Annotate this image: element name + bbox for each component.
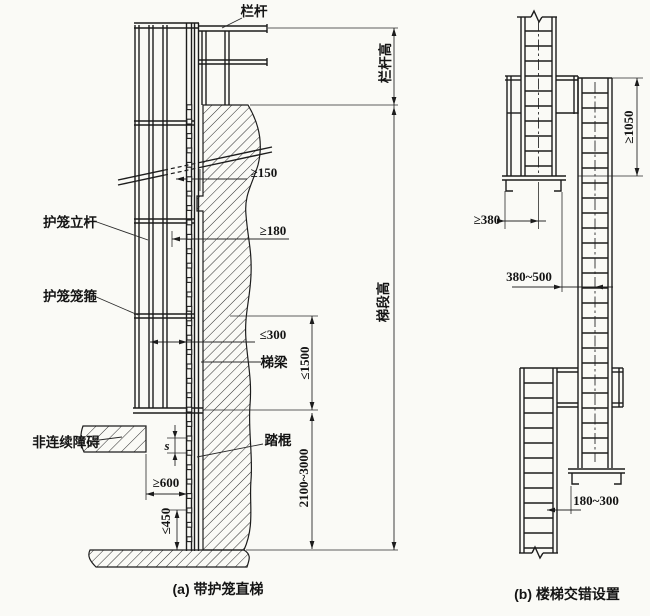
dim-le450: ≤450	[158, 508, 173, 535]
caption-a: (a) 带护笼直梯	[173, 581, 264, 597]
lower-left-ladder	[519, 368, 558, 558]
technical-drawing: 栏杆 护笼立杆 护笼笼箍 非连续障碍 梯梁 踏棍 ≥150 ≥180 ≤300 …	[0, 0, 650, 616]
lower-left-ladder-rungs	[524, 383, 553, 548]
figure-canvas: 栏杆 护笼立杆 护笼笼箍 非连续障碍 梯梁 踏棍 ≥150 ≥180 ≤300 …	[0, 0, 650, 616]
dim-flight-height: 梯段高	[375, 282, 391, 323]
label-cage-hoop: 护笼笼箍	[43, 288, 97, 304]
dim-ge600: ≥600	[153, 475, 180, 490]
label-cage-upright: 护笼立杆	[43, 214, 97, 230]
dim-ge380: ≥380	[474, 212, 501, 227]
upper-platform	[502, 176, 566, 191]
platform-hook-right	[614, 473, 621, 484]
ground-slab	[89, 550, 249, 567]
label-guardrail: 栏杆	[241, 3, 268, 19]
arrowheads-a	[146, 28, 396, 550]
break-symbol-top	[531, 11, 542, 22]
dim-s: s	[163, 438, 169, 453]
cage-uprights	[135, 25, 167, 408]
label-stringer: 梯梁	[261, 354, 288, 370]
lower-platform	[568, 469, 625, 484]
platform-hook-left	[572, 473, 579, 484]
platform-hook-right	[554, 180, 561, 191]
dim-380-500: 380~500	[506, 269, 552, 284]
dim-guardrail-height: 栏杆高	[377, 43, 393, 84]
lower-cage-outline	[557, 368, 623, 407]
caption-b: (b) 楼梯交错设置	[514, 586, 620, 602]
dim-ge150: ≥150	[251, 165, 278, 180]
staggered-ladders-elevation: ≥1050 ≥380 380~500 180~300 (b) 楼梯交错设置	[474, 11, 643, 602]
cage-hoops	[133, 23, 203, 413]
dim-ge1050: ≥1050	[621, 110, 636, 143]
label-rung: 踏棍	[265, 432, 292, 448]
arrowheads-b	[497, 78, 639, 512]
dim-le1500: ≤1500	[297, 346, 312, 379]
ladder-with-cage-elevation: 栏杆 护笼立杆 护笼笼箍 非连续障碍 梯梁 踏棍 ≥150 ≥180 ≤300 …	[32, 3, 398, 597]
dim-180-300: 180~300	[573, 493, 619, 508]
dim-le300: ≤300	[260, 327, 287, 342]
ladder-stringers	[187, 23, 199, 551]
platform-hook-left	[506, 180, 513, 191]
label-discontinuous-obstacle: 非连续障碍	[32, 434, 100, 450]
dim-2100-3000: 2100~3000	[296, 449, 311, 508]
guardrail	[199, 24, 267, 105]
dim-ge180: ≥180	[260, 223, 287, 238]
